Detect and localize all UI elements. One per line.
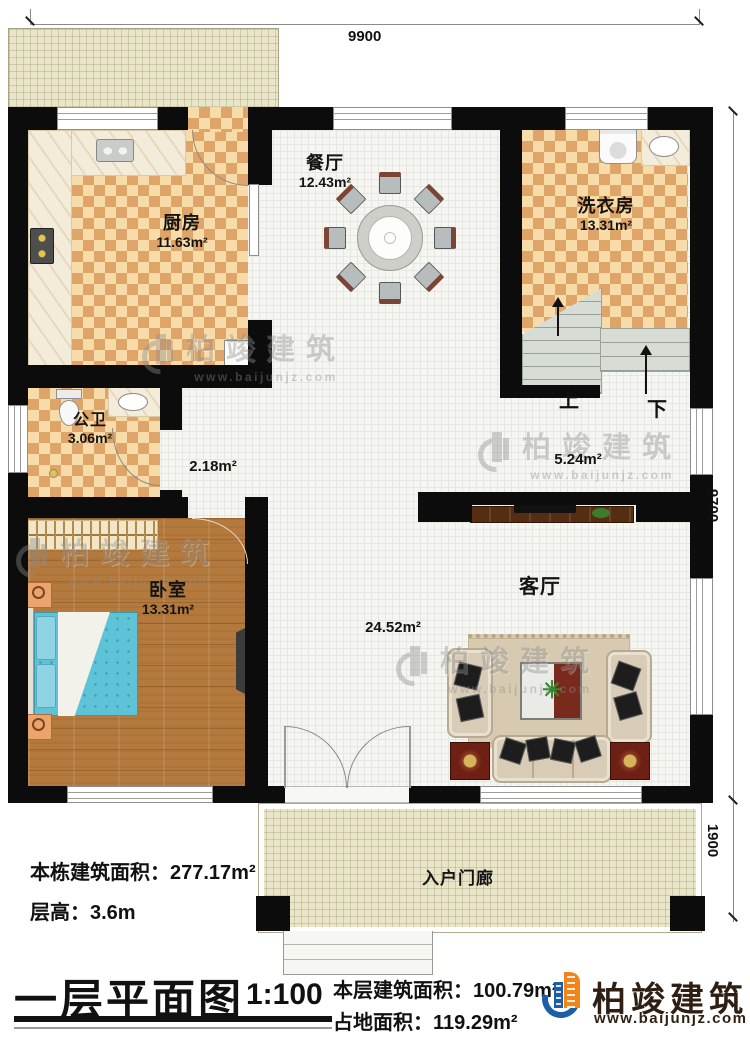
washing-machine <box>599 129 637 164</box>
room-label-laundry: 洗衣房 13.31m² <box>578 196 635 233</box>
floor-area-line: 本层建筑面积：100.79m² <box>333 974 559 1003</box>
room-name: 卧室 <box>142 580 194 601</box>
room-area: 11.63m² <box>156 234 207 250</box>
entry-door-leaf <box>409 726 411 788</box>
title-underline-thin <box>14 1027 332 1029</box>
room-label-dining: 餐厅 12.43m² <box>299 153 351 190</box>
living-tv <box>514 504 576 513</box>
footprint-label: 占地面积： <box>333 1012 433 1034</box>
stair-down-arrowhead <box>640 345 652 355</box>
bedroom-tv <box>236 628 245 694</box>
side-table <box>450 742 490 780</box>
window <box>565 107 648 130</box>
room-area: 13.31m² <box>142 601 194 617</box>
nightstand-lamp <box>32 586 45 599</box>
wall <box>409 786 480 803</box>
wall <box>248 107 333 130</box>
room-name: 餐厅 <box>299 153 351 174</box>
pillow <box>550 738 576 764</box>
total-area-value: 277.17m² <box>170 862 256 884</box>
stair-down-arrow <box>645 354 647 394</box>
window <box>8 405 28 473</box>
wall-kitchen-dining <box>248 130 272 185</box>
window <box>333 107 452 130</box>
room-label-porch: 入户门廊 <box>422 869 494 889</box>
wall <box>25 107 57 130</box>
stairs-up-label: 上 <box>559 384 579 413</box>
wall-kitchen-dining <box>248 320 272 368</box>
room-label-bedroom: 卧室 13.31m² <box>142 580 194 617</box>
room-name: 洗衣房 <box>578 196 635 217</box>
room-label-living: 客厅 <box>519 576 561 599</box>
total-area-label: 本栋建筑面积： <box>30 862 170 884</box>
wall-kitchen-south <box>8 365 272 388</box>
brand-logo-icon <box>542 966 590 1030</box>
floor-height-line: 层高：3.6m <box>30 896 136 925</box>
room-label-bathroom: 公卫 3.06m² <box>68 412 112 446</box>
stair-landing-area-value: 5.24m² <box>554 451 602 468</box>
wall <box>8 107 28 405</box>
floor-height-label: 层高： <box>30 902 90 924</box>
stairs-down-label: 下 <box>647 393 667 422</box>
laundry-sink <box>649 136 679 157</box>
dining-chair <box>379 282 401 304</box>
room-area: 12.43m² <box>299 174 351 190</box>
window <box>690 578 713 715</box>
wall <box>8 473 28 803</box>
dimension-right-value: 9700 <box>704 485 721 526</box>
entry-steps <box>283 931 433 975</box>
brand-logo-building-blue <box>554 982 563 1008</box>
room-area: 13.31m² <box>578 217 635 233</box>
pillow-bed <box>36 664 56 708</box>
window <box>690 408 713 475</box>
table-plant: ✳ <box>540 679 564 703</box>
patio-terrace <box>8 28 279 109</box>
wall-bathroom <box>160 365 182 430</box>
entry-door-threshold <box>285 786 409 803</box>
dining-chair <box>324 227 346 249</box>
wall <box>642 786 713 803</box>
armchair-left <box>447 648 493 738</box>
nightstand-lamp <box>32 718 45 731</box>
dimension-top-value: 9900 <box>344 28 385 45</box>
brand-website: www.baijunjz.com <box>594 1010 747 1027</box>
dimension-line-top <box>30 24 700 25</box>
room-name: 公卫 <box>68 412 112 430</box>
side-table <box>610 742 650 780</box>
hallway-area-value: 2.18m² <box>189 458 237 475</box>
total-area-line: 本栋建筑面积：277.17m² <box>30 856 256 885</box>
wall-stair-south <box>500 385 600 398</box>
wall <box>158 107 188 130</box>
wall <box>8 786 67 803</box>
dimension-porch-value: 1900 <box>704 820 721 861</box>
title-underline-thick <box>14 1016 332 1022</box>
room-name: 厨房 <box>156 213 207 234</box>
cabinet-plant <box>592 508 610 518</box>
porch-column <box>670 896 705 931</box>
wall <box>690 107 713 408</box>
floor-plan: 9900 9700 1900 <box>0 0 750 1041</box>
kitchen-entry-floor <box>188 107 248 132</box>
wall-bedroom-east <box>245 497 268 803</box>
stair-up-arrowhead <box>552 297 564 307</box>
footprint-value: 119.29m² <box>433 1012 518 1034</box>
room-area: 3.06m² <box>68 430 112 446</box>
dining-table-center <box>384 232 396 244</box>
wall-stair-west <box>500 107 522 398</box>
room-label-kitchen: 厨房 11.63m² <box>156 213 207 250</box>
living-area-value: 24.52m² <box>365 619 421 636</box>
kitchen-sink <box>96 139 134 162</box>
stair-up-arrow <box>557 306 559 336</box>
entry-door-leaf <box>284 726 286 788</box>
toilet-tank <box>56 389 82 399</box>
wall-bedroom-north <box>8 497 188 518</box>
pillow <box>456 694 484 722</box>
dining-chair <box>379 172 401 194</box>
room-name: 客厅 <box>519 576 561 599</box>
wardrobe <box>28 520 158 550</box>
footprint-line: 占地面积：119.29m² <box>333 1006 518 1035</box>
stove <box>30 228 54 264</box>
pillow-bed <box>36 616 56 660</box>
floor-height-value: 3.6m <box>90 902 136 924</box>
room-name: 入户门廊 <box>422 869 494 889</box>
window <box>67 786 213 803</box>
dining-chair <box>434 227 456 249</box>
plan-scale: 1:100 <box>246 978 323 1012</box>
window <box>57 107 158 130</box>
wall-stub <box>418 492 472 522</box>
bathroom-sink <box>118 393 148 411</box>
floor-area-label: 本层建筑面积： <box>333 980 473 1002</box>
window <box>480 786 642 803</box>
kitchen-dining-door <box>249 184 259 256</box>
wall-stub <box>636 492 692 522</box>
porch-column <box>256 896 290 931</box>
pillow <box>525 736 550 761</box>
entry-porch <box>258 803 702 933</box>
floor-drain <box>49 469 58 478</box>
brand-logo-building-orange <box>564 972 580 1008</box>
